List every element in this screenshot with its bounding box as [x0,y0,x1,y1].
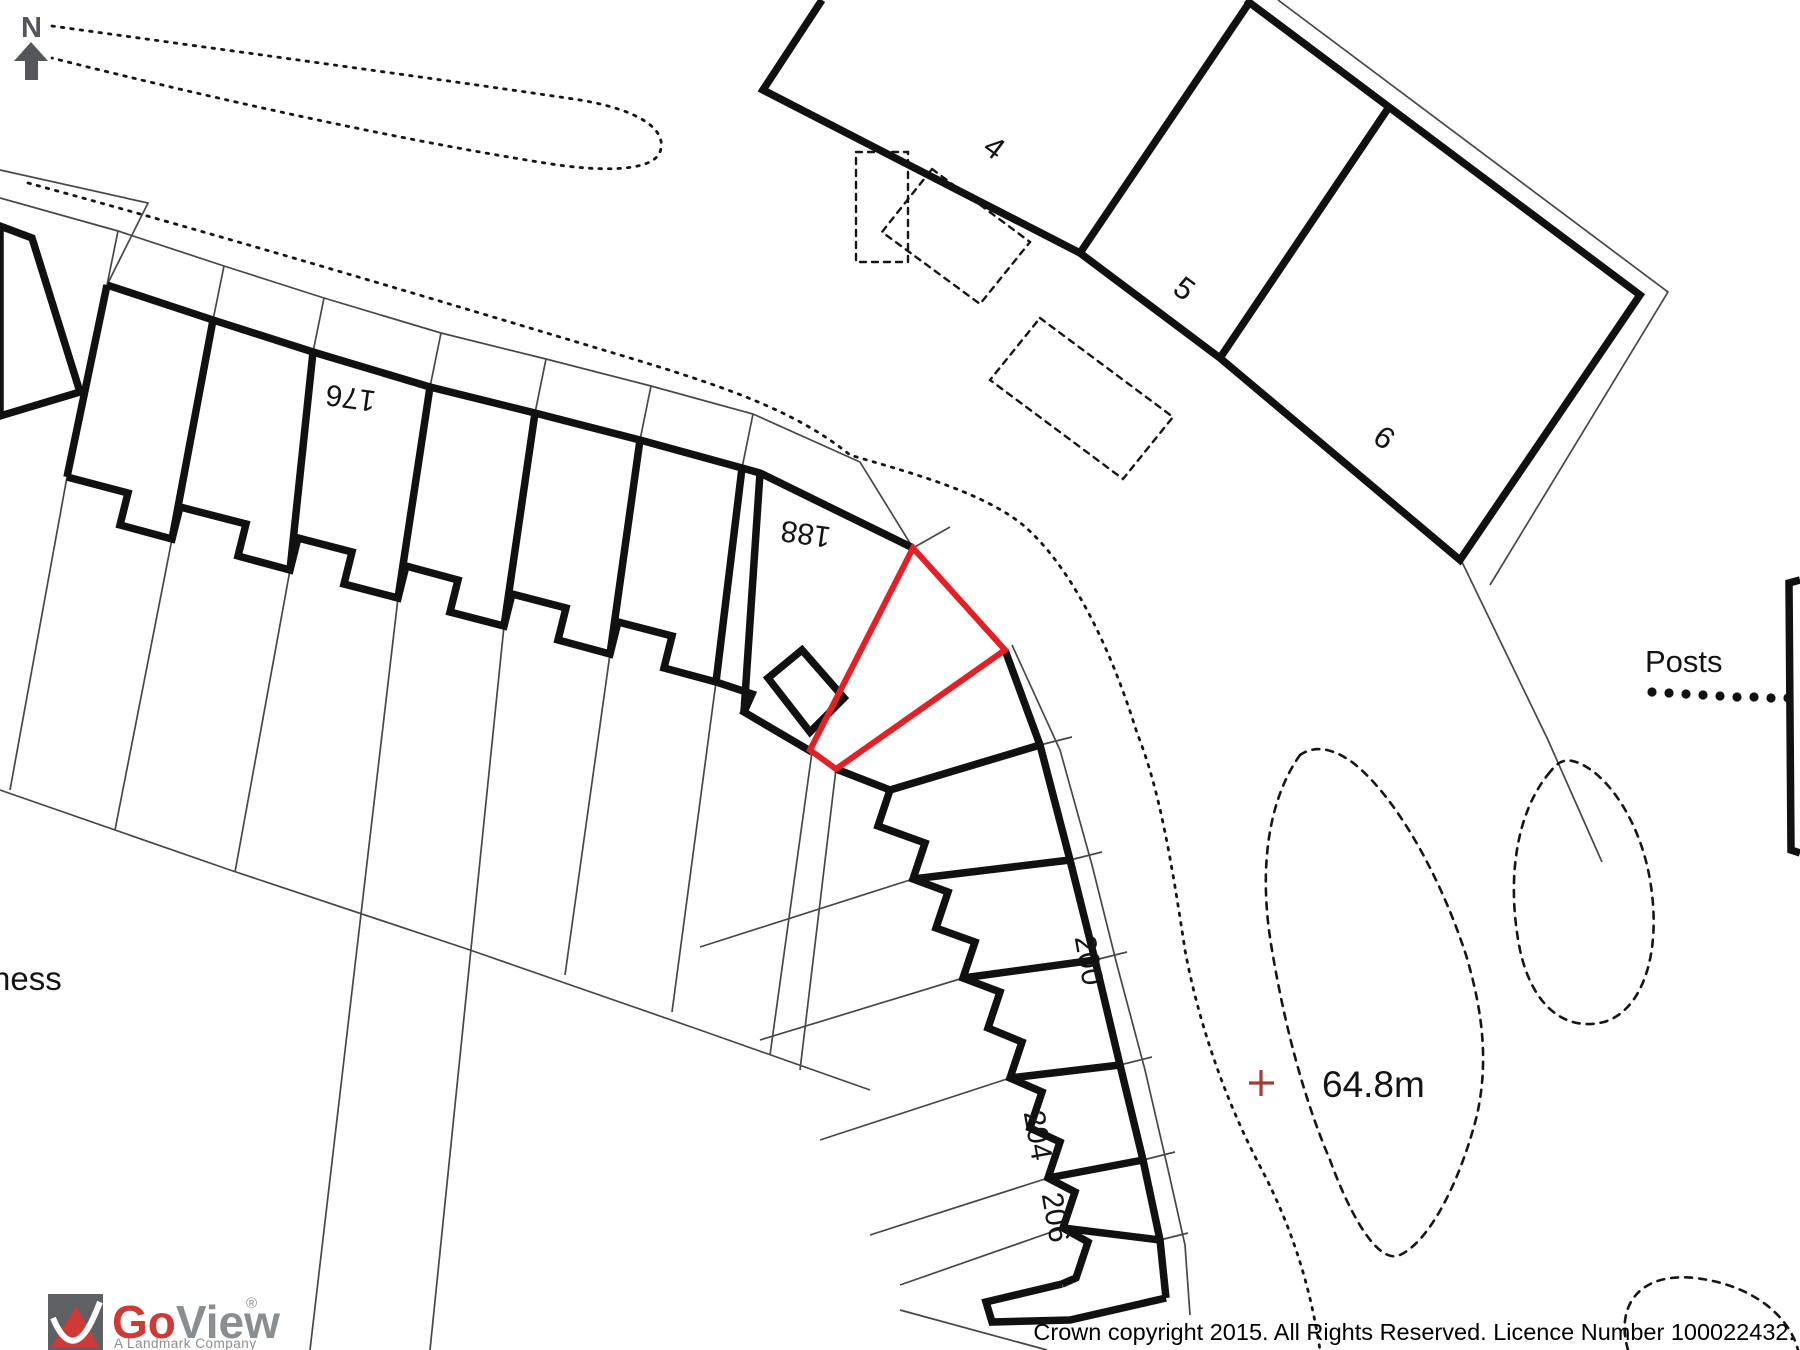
unfenced-structure-dashed-2 [990,318,1173,479]
plot-boundary-thin-lines [0,0,1668,1350]
end-house-plot [0,170,148,285]
upper-terrace-party-walls [172,320,760,712]
teardrop-island-dashed [1514,760,1654,1024]
road-edge-dotted-lines [28,26,1798,1350]
label-house-200: 200 [1068,933,1109,988]
kerb-line-northeast [1278,0,1668,585]
label-plot-4: 4 [977,128,1012,166]
spot-height-cross [1249,1070,1274,1096]
label-posts: Posts [1645,644,1723,679]
label-plot-5: 5 [1167,269,1202,307]
north-letter: N [21,12,42,44]
label-house-176: 176 [324,378,378,418]
label-street-fragment: ness [0,960,62,997]
parking-loop-dotted [52,26,661,169]
house-188-rear-extension [768,650,844,732]
lower-rear-garden-lines [700,879,1063,1285]
copyright-text: Crown copyright 2015. All Rights Reserve… [1033,1319,1795,1345]
logo-registered-mark: ® [246,1295,257,1312]
posts-building-outline [1789,580,1800,853]
traffic-island-dashed [1266,749,1483,1256]
posts-dots [1647,687,1792,702]
map-labels: 176 188 200 204 206 4 5 6 Posts 64.8m ne… [0,128,1723,1244]
red-plot-tick [913,527,950,548]
lower-terrace-party-walls [890,745,1160,1240]
label-house-204: 204 [1017,1108,1058,1163]
plots-456-dividers [1080,0,1389,358]
bottom-boundary-line [900,1310,1047,1350]
north-arrow-icon: N [14,12,48,80]
label-spot-height: 64.8m [1322,1064,1425,1105]
boundary-from-south-corner [1462,562,1602,862]
label-house-188: 188 [779,514,833,554]
map-canvas: N 176 188 200 204 206 4 5 6 Posts 64.8m … [0,0,1800,1350]
garden-end-line [0,790,870,1090]
building-outlines [0,0,1800,1322]
front-garden-line [0,198,913,548]
goview-logo: GoView ® A Landmark Company [48,1294,280,1350]
red-plot-outline [810,548,1005,769]
end-house-outline [0,226,80,416]
pavement-dotted [28,183,1320,1350]
north-arrow-glyph [14,42,48,80]
logo-tagline: A Landmark Company [114,1336,257,1350]
label-plot-6: 6 [1367,418,1402,456]
site-plan-drawing: N 176 188 200 204 206 4 5 6 Posts 64.8m … [0,0,1800,1350]
lower-terrace-south-end [986,1284,1166,1322]
rear-garden-lines [10,477,836,1350]
